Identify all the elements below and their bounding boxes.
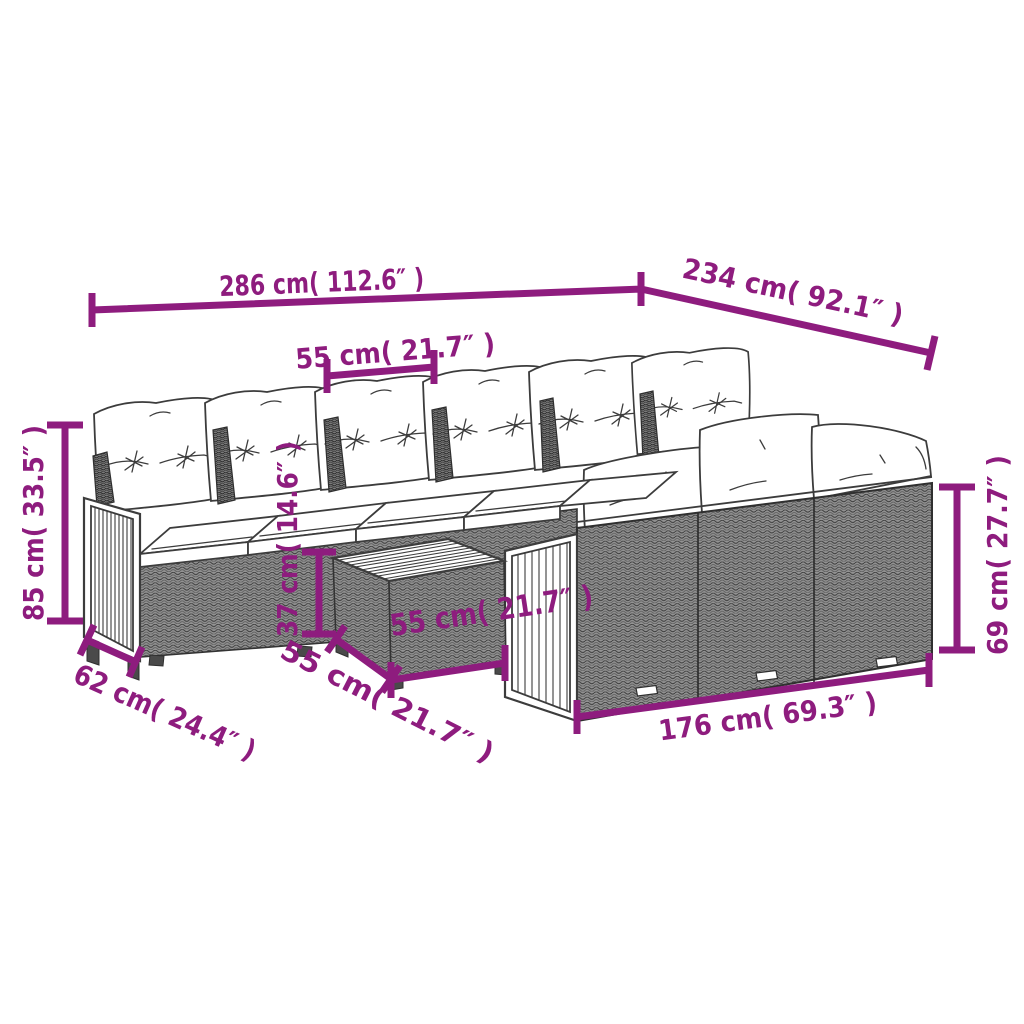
dimension-label-arm-depth: 62 cm( 24.4″ ) <box>69 657 261 767</box>
product-dimension-diagram: 286 cm( 112.6″ ) 234 cm( 92.1″ ) 55 cm( … <box>0 0 1024 1024</box>
sofa-foot <box>149 655 164 666</box>
corner-wood-panel <box>505 534 577 721</box>
dimension-back-height: 85 cm( 33.5″ ) <box>17 425 83 621</box>
dimension-total-width: 286 cm( 112.6″ ) <box>92 262 641 327</box>
dimension-label-table-height: 37 cm( 14.6″ ) <box>271 441 304 637</box>
diagram-canvas: 286 cm( 112.6″ ) 234 cm( 92.1″ ) 55 cm( … <box>0 0 1024 1024</box>
dimension-label-back-height: 85 cm( 33.5″ ) <box>17 425 50 621</box>
sofa-foot <box>756 671 778 682</box>
sofa-foot <box>876 657 898 668</box>
dimension-right-back-height: 69 cm( 27.7″ ) <box>939 455 1014 655</box>
sofa-foot <box>636 686 658 697</box>
dimension-label-right-back-height: 69 cm( 27.7″ ) <box>981 455 1014 655</box>
